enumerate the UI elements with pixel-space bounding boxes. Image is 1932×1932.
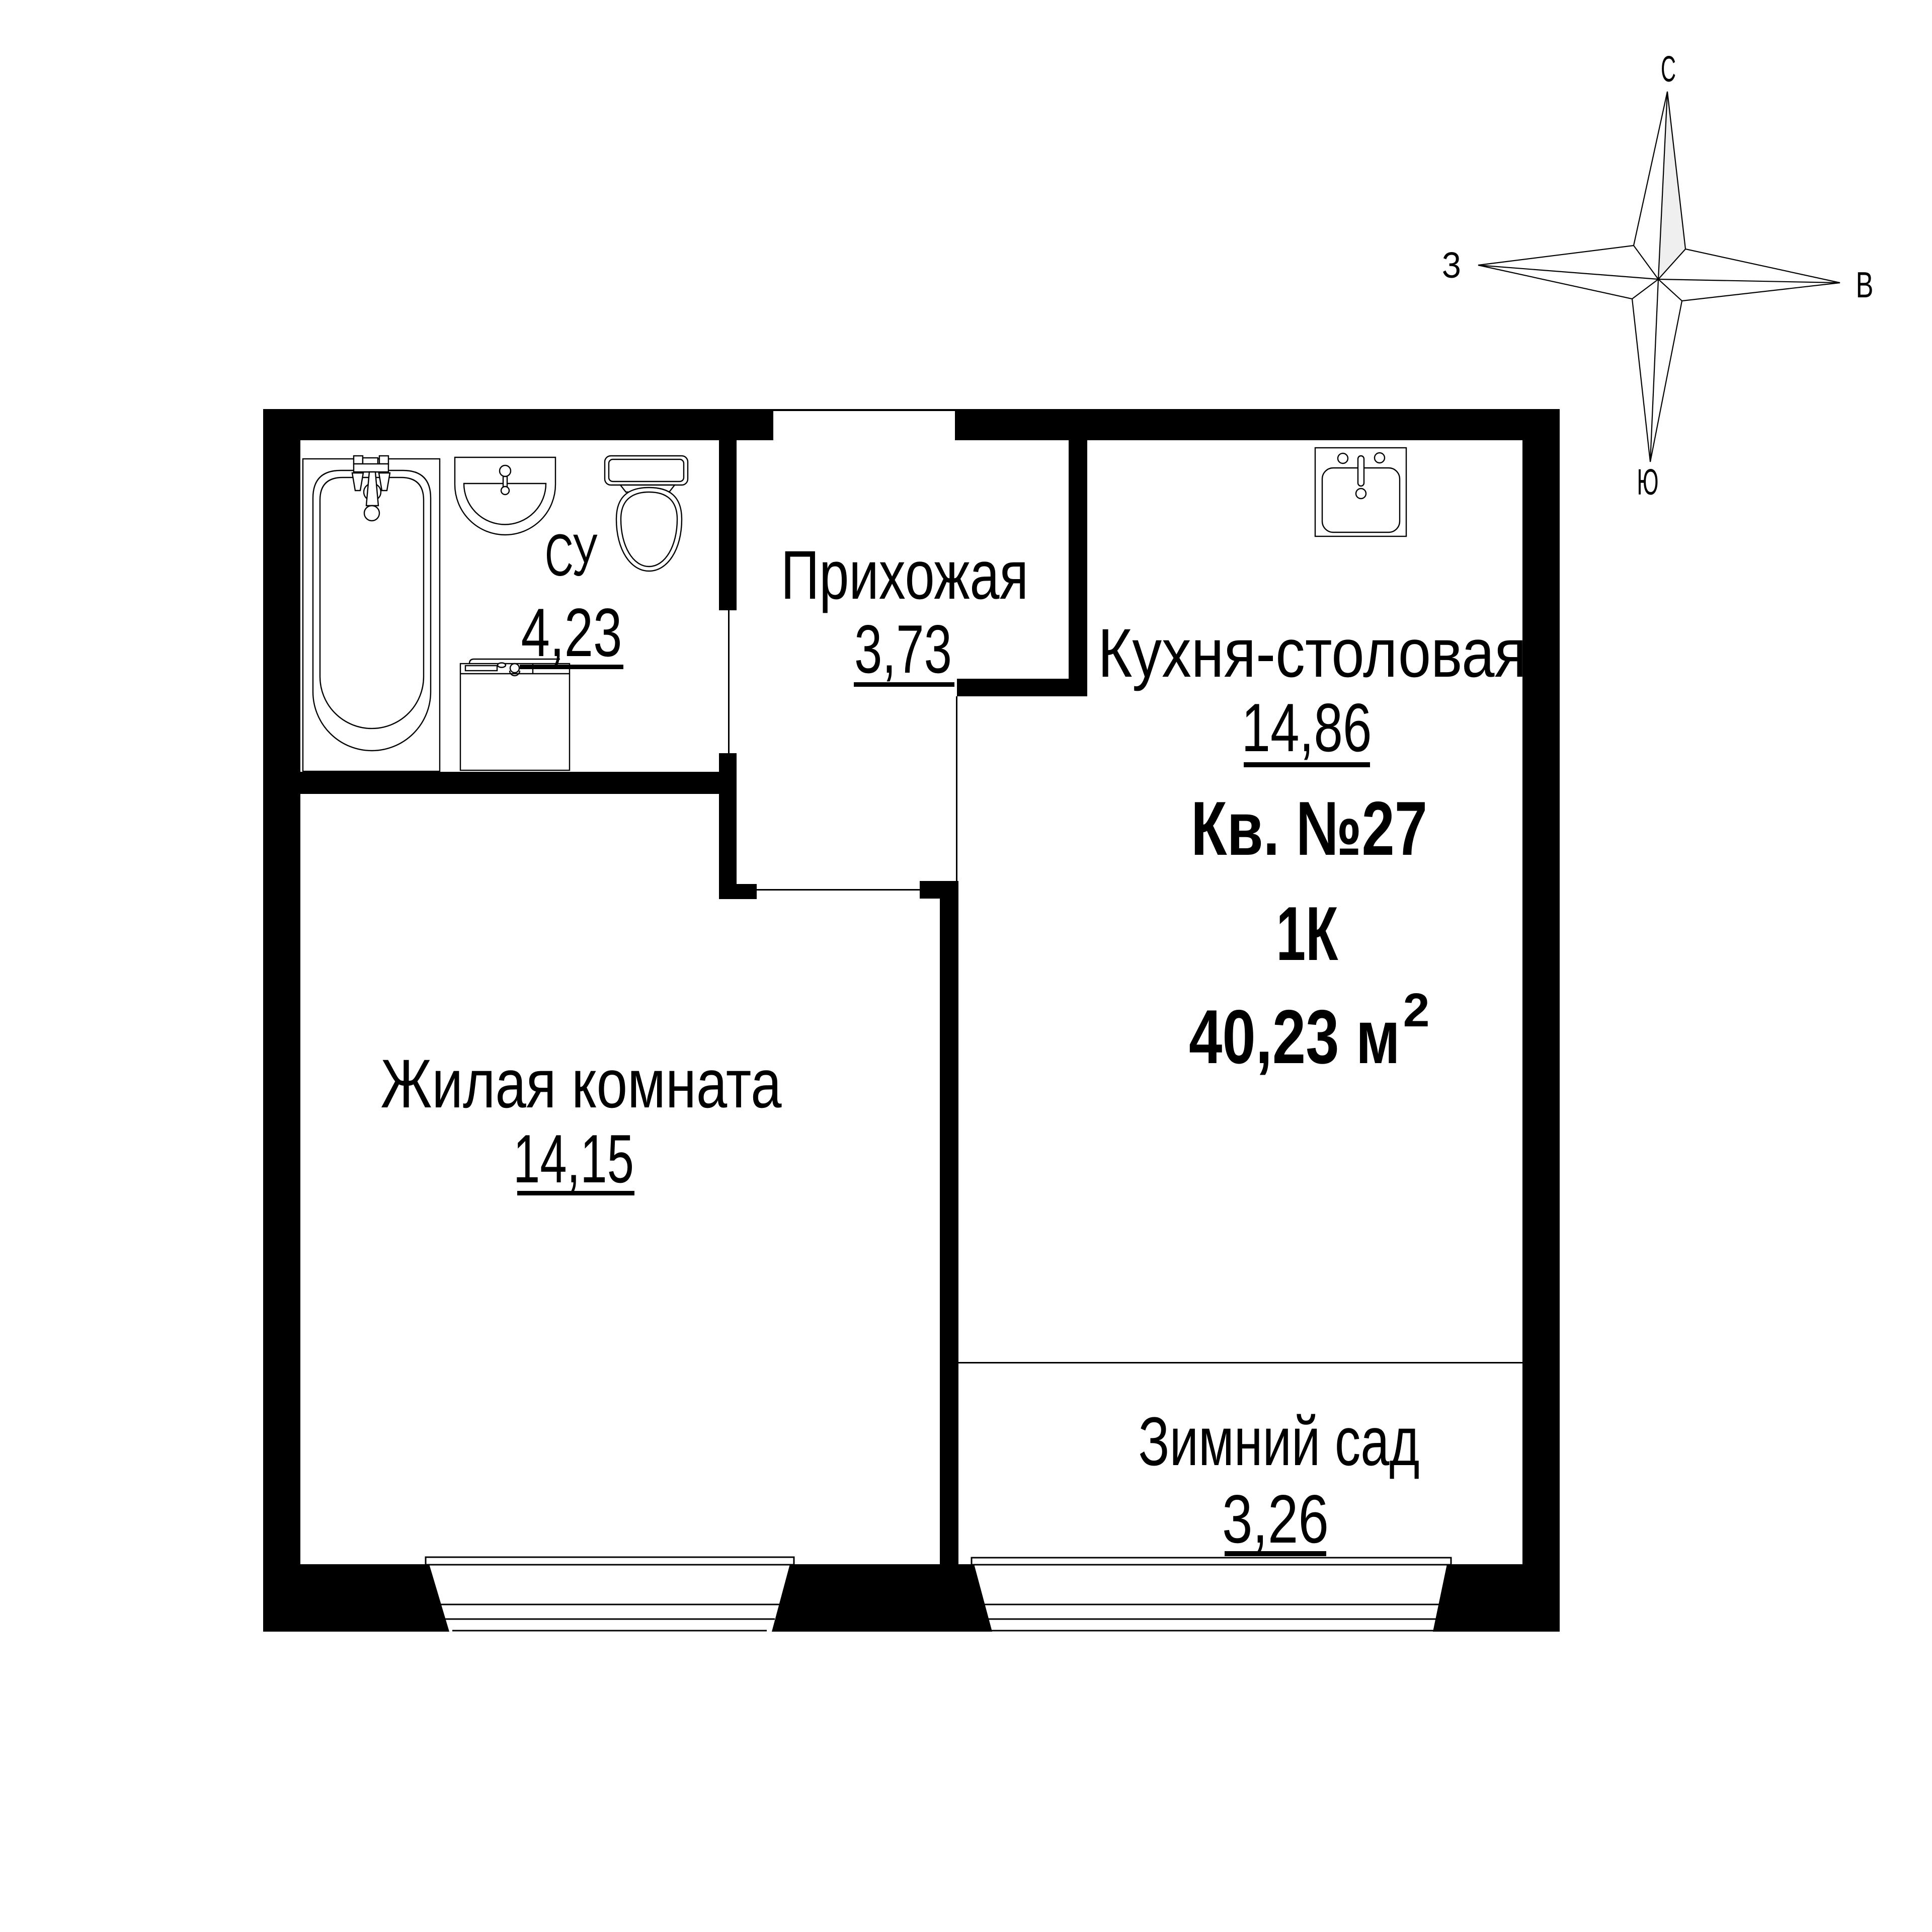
svg-text:В: В [1856, 265, 1874, 305]
svg-text:3,26: 3,26 [1222, 1481, 1329, 1557]
svg-text:1К: 1К [1276, 891, 1338, 977]
svg-text:З: З [1442, 246, 1461, 286]
svg-text:Жилая комната: Жилая комната [381, 1045, 782, 1122]
svg-text:2: 2 [1403, 984, 1430, 1037]
svg-text:С: С [1661, 49, 1676, 90]
svg-text:Кухня-столовая: Кухня-столовая [1098, 615, 1526, 692]
svg-text:3,73: 3,73 [854, 611, 952, 687]
svg-text:Зимний сад: Зимний сад [1139, 1403, 1420, 1480]
svg-text:Кв. №27: Кв. №27 [1191, 786, 1427, 871]
svg-text:СУ: СУ [545, 522, 598, 589]
svg-text:Ю: Ю [1637, 462, 1659, 503]
svg-text:14,86: 14,86 [1242, 689, 1372, 766]
svg-text:Прихожая: Прихожая [781, 537, 1028, 614]
svg-text:40,23 м: 40,23 м [1189, 994, 1400, 1080]
svg-text:14,15: 14,15 [513, 1120, 634, 1197]
svg-text:4,23: 4,23 [521, 594, 622, 671]
